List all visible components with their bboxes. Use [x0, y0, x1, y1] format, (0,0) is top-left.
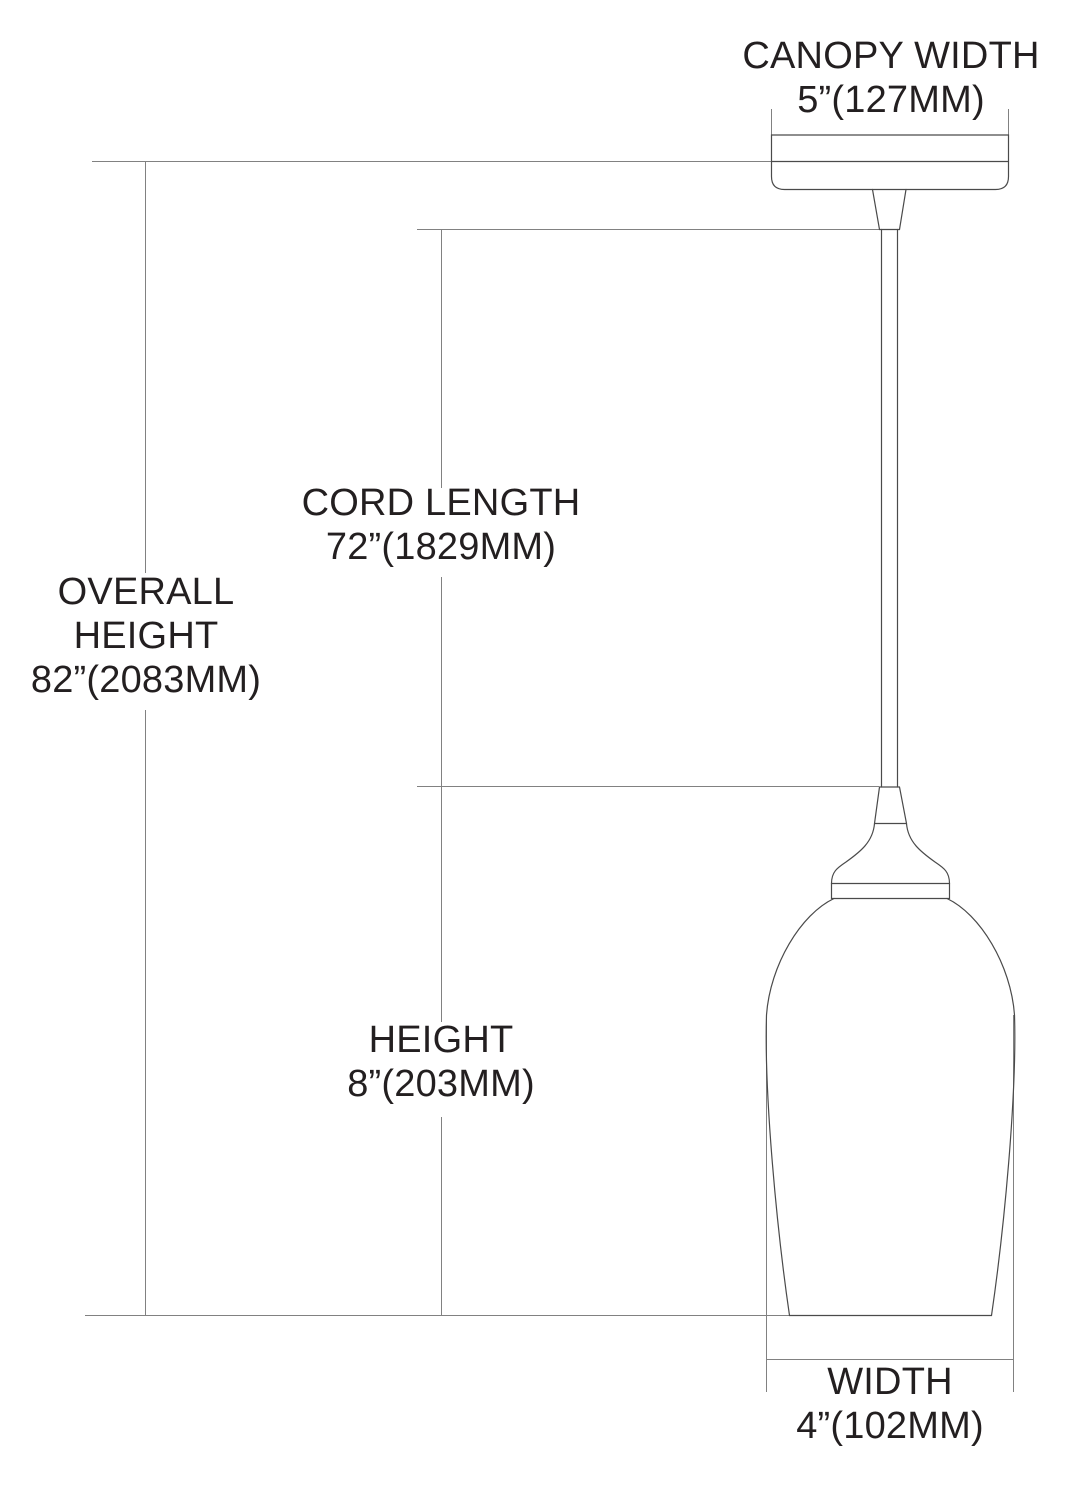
- fitter-rim: [832, 884, 950, 899]
- overall-height-label-line1: OVERALL: [31, 570, 261, 614]
- canopy-width-value: 5”(127MM): [742, 78, 1039, 122]
- socket-stem: [875, 787, 907, 824]
- canopy-outline: [772, 135, 1009, 190]
- width-label-text: WIDTH: [796, 1360, 984, 1404]
- width-label: WIDTH 4”(102MM): [796, 1360, 984, 1448]
- glass-shade-outline: [766, 899, 1015, 1316]
- canopy-stem: [873, 190, 907, 230]
- pendant-dimension-diagram: CANOPY WIDTH 5”(127MM) CORD LENGTH 72”(1…: [0, 0, 1069, 1500]
- canopy-width-label: CANOPY WIDTH 5”(127MM): [742, 34, 1039, 122]
- cord-length-label-text: CORD LENGTH: [302, 481, 581, 525]
- dimension-lines: [85, 109, 1014, 1392]
- fixture-drawing: [0, 0, 1069, 1500]
- socket-bell-right: [907, 824, 950, 884]
- cord-length-value: 72”(1829MM): [302, 525, 581, 569]
- height-label-text: HEIGHT: [347, 1018, 535, 1062]
- socket-bell-left: [832, 824, 875, 884]
- height-label: HEIGHT 8”(203MM): [347, 1018, 535, 1106]
- width-value: 4”(102MM): [796, 1404, 984, 1448]
- canopy-width-label-text: CANOPY WIDTH: [742, 34, 1039, 78]
- overall-height-value: 82”(2083MM): [31, 658, 261, 702]
- overall-height-label: OVERALL HEIGHT 82”(2083MM): [31, 570, 261, 702]
- overall-height-label-line2: HEIGHT: [31, 614, 261, 658]
- height-value: 8”(203MM): [347, 1062, 535, 1106]
- cord-length-label: CORD LENGTH 72”(1829MM): [302, 481, 581, 569]
- fixture-outline: [766, 135, 1015, 1316]
